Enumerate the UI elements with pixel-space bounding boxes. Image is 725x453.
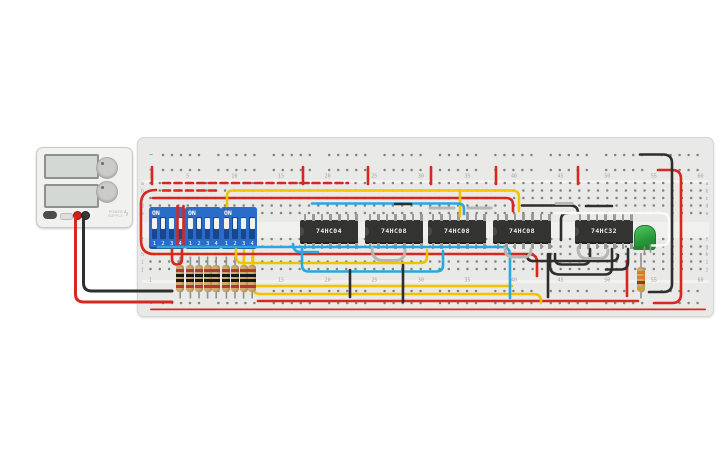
- ic-pin: [386, 243, 389, 250]
- ic-pin: [347, 243, 350, 250]
- resistor-band: [204, 269, 212, 272]
- dip-slider-slot: [249, 217, 255, 239]
- ic-pin: [312, 243, 315, 250]
- ic-pin: [403, 243, 406, 250]
- ic-pin: [475, 243, 478, 250]
- ic-pin: [483, 214, 486, 221]
- ic-pin: [321, 243, 324, 250]
- ic-pin: [466, 243, 469, 250]
- ic-pin: [604, 243, 607, 250]
- dip-slider-slot: [213, 217, 219, 239]
- ic-pin: [596, 214, 599, 221]
- resistor-band: [231, 285, 239, 288]
- knob-indicator-dot: [101, 162, 104, 165]
- ic-pin: [604, 214, 607, 221]
- ic-pin: [440, 243, 443, 250]
- resistor-band: [176, 274, 184, 277]
- ic-label: 74HC08: [365, 227, 423, 235]
- dip-slider-handle[interactable]: [241, 218, 246, 229]
- ic-pin: [369, 243, 372, 250]
- ic-pin: [531, 214, 534, 221]
- ic-pin: [522, 243, 525, 250]
- ic-pin: [505, 214, 508, 221]
- resistor-band: [231, 274, 239, 277]
- dip-switch-1[interactable]: ON 1234: [149, 207, 185, 249]
- dip-slider-handle[interactable]: [214, 218, 219, 229]
- psu-voltage-display: [44, 154, 99, 179]
- circuit-canvas: 1155101015152020252530303535404045455050…: [0, 0, 725, 453]
- ic-pin: [369, 214, 372, 221]
- resistor-band: [195, 269, 203, 272]
- resistor[interactable]: [222, 265, 230, 292]
- dip-pin-number: 2: [196, 241, 202, 247]
- ic-label: 74HC08: [493, 227, 551, 235]
- dip-slider-handle[interactable]: [178, 218, 183, 229]
- resistor-band: [231, 269, 239, 272]
- ic-pin: [531, 243, 534, 250]
- psu-lightning-icon: ϟ: [124, 209, 128, 218]
- ic-label: 74HC04: [300, 227, 358, 235]
- resistor-band: [212, 269, 220, 272]
- resistor[interactable]: [195, 265, 203, 292]
- dip-pin-number: 1: [152, 241, 158, 247]
- ic-pin: [304, 214, 307, 221]
- resistor-band: [637, 271, 645, 274]
- psu-brand-line2: SUPPLY: [108, 214, 123, 218]
- dip-slider-slot: [152, 217, 158, 239]
- ic-pin: [457, 214, 460, 221]
- ic-pin: [540, 214, 543, 221]
- ic-pin: [540, 243, 543, 250]
- ic-pin: [449, 214, 452, 221]
- resistor[interactable]: [212, 265, 220, 292]
- power-supply[interactable]: POWER SUPPLY ϟ: [36, 147, 133, 228]
- dip-pin-number: 1: [224, 241, 230, 247]
- dip-pin-number: 1: [188, 241, 194, 247]
- dip-on-label: ON: [152, 209, 160, 217]
- dip-switch-3[interactable]: ON 1234: [221, 207, 257, 249]
- ic-pin: [522, 214, 525, 221]
- ic-pin: [497, 243, 500, 250]
- rail-separator-top: [142, 180, 709, 183]
- dip-slider-slot: [196, 217, 202, 239]
- dip-pin-number: 4: [177, 241, 183, 247]
- resistor-band: [186, 285, 194, 288]
- resistor-band: [204, 285, 212, 288]
- dip-pin-number: 2: [232, 241, 238, 247]
- ic-pin: [622, 214, 625, 221]
- ic-label: 74HC08: [428, 227, 486, 235]
- ic-pin: [386, 214, 389, 221]
- resistor-band: [212, 274, 220, 277]
- dip-pin-number: 2: [160, 241, 166, 247]
- resistor[interactable]: [204, 265, 212, 292]
- dip-slider-slot: [241, 217, 247, 239]
- resistor-band: [195, 274, 203, 277]
- ic-pin: [514, 214, 517, 221]
- resistor[interactable]: [176, 265, 184, 292]
- ic-pin: [613, 243, 616, 250]
- resistor-band: [212, 285, 220, 288]
- resistor-band: [186, 269, 194, 272]
- resistor-band: [637, 281, 645, 284]
- dip-slider-slot: [188, 217, 194, 239]
- ic-74hc08-a[interactable]: 74HC08: [365, 214, 423, 249]
- ic-pin: [329, 243, 332, 250]
- resistor[interactable]: [637, 267, 645, 292]
- ic-pin: [587, 243, 590, 250]
- psu-current-knob[interactable]: [96, 181, 118, 203]
- resistor-band: [176, 285, 184, 288]
- psu-voltage-knob[interactable]: [96, 157, 118, 179]
- dip-slider-slot: [224, 217, 230, 239]
- resistor-band: [240, 269, 248, 272]
- dip-slider-handle[interactable]: [250, 218, 255, 229]
- ic-pin: [579, 243, 582, 250]
- ic-pin: [548, 214, 551, 221]
- ic-pin: [394, 214, 397, 221]
- ic-pin: [321, 214, 324, 221]
- ic-pin: [457, 243, 460, 250]
- ic-74hc04[interactable]: 74HC04: [300, 214, 358, 249]
- resistor-band: [637, 287, 645, 290]
- dip-pin-number: 4: [213, 241, 219, 247]
- resistor-band: [195, 279, 203, 282]
- resistor-band: [176, 269, 184, 272]
- dip-slider-slot: [232, 217, 238, 239]
- dip-pin-number: 3: [241, 241, 247, 247]
- green-led[interactable]: [633, 225, 655, 251]
- ic-pin: [497, 214, 500, 221]
- resistor-band: [222, 274, 230, 277]
- ic-pin: [338, 243, 341, 250]
- ic-pin: [403, 214, 406, 221]
- ic-pin: [394, 243, 397, 250]
- ic-pin: [630, 214, 633, 221]
- dip-pin-number: 3: [205, 241, 211, 247]
- ic-pin: [613, 214, 616, 221]
- resistor-band: [186, 274, 194, 277]
- ic-pin: [505, 243, 508, 250]
- ic-pin: [329, 214, 332, 221]
- resistor-band: [240, 285, 248, 288]
- resistor-band: [222, 269, 230, 272]
- resistor[interactable]: [248, 265, 256, 292]
- resistor-band: [637, 276, 645, 279]
- ic-pin: [432, 214, 435, 221]
- dip-slider-handle[interactable]: [161, 218, 166, 229]
- resistor[interactable]: [231, 265, 239, 292]
- resistor-band: [248, 269, 256, 272]
- ic-pin: [377, 214, 380, 221]
- dip-slider-handle[interactable]: [224, 218, 229, 229]
- ic-pin: [579, 214, 582, 221]
- resistor-band: [176, 279, 184, 282]
- resistor-band: [231, 279, 239, 282]
- dip-slider-handle[interactable]: [152, 218, 157, 229]
- dip-slider-handle[interactable]: [205, 218, 210, 229]
- dip-pin-number: 4: [249, 241, 255, 247]
- dip-slider-handle[interactable]: [197, 218, 202, 229]
- ic-pin: [312, 214, 315, 221]
- knob-indicator-dot: [101, 186, 104, 189]
- dip-slider-handle[interactable]: [169, 218, 174, 229]
- ic-pin: [596, 243, 599, 250]
- led-flange: [633, 246, 655, 250]
- ic-pin: [377, 243, 380, 250]
- ic-pin: [440, 214, 443, 221]
- resistor[interactable]: [240, 265, 248, 292]
- ic-pin: [304, 243, 307, 250]
- psu-power-button[interactable]: [43, 211, 57, 219]
- ic-pin: [587, 214, 590, 221]
- resistor-band: [248, 274, 256, 277]
- ic-pin: [347, 214, 350, 221]
- dip-slider-handle[interactable]: [188, 218, 193, 229]
- psu-current-display: [44, 184, 99, 208]
- dip-pin-number: 3: [169, 241, 175, 247]
- ic-pin: [449, 243, 452, 250]
- psu-power-state-pill: [60, 213, 73, 220]
- dip-slider-slot: [160, 217, 166, 239]
- resistor-band: [240, 279, 248, 282]
- ic-pin: [548, 243, 551, 250]
- ic-pin: [420, 243, 423, 250]
- dip-slider-slot: [205, 217, 211, 239]
- dip-on-label: ON: [188, 209, 196, 217]
- ic-pin: [355, 214, 358, 221]
- resistor-band: [195, 285, 203, 288]
- ic-pin: [338, 214, 341, 221]
- resistor-band: [248, 279, 256, 282]
- ic-pin: [466, 214, 469, 221]
- dip-switch-2[interactable]: ON 1234: [185, 207, 221, 249]
- resistor-band: [222, 285, 230, 288]
- ic-pin: [412, 243, 415, 250]
- ic-pin: [514, 243, 517, 250]
- ic-74hc32[interactable]: 74HC32: [575, 214, 633, 249]
- dip-slider-slot: [169, 217, 175, 239]
- ic-pin: [412, 214, 415, 221]
- resistor-band: [212, 279, 220, 282]
- ic-pin: [420, 214, 423, 221]
- resistor-band: [222, 279, 230, 282]
- dip-on-label: ON: [224, 209, 232, 217]
- ic-74hc08-c[interactable]: 74HC08: [493, 214, 551, 249]
- ic-pin: [475, 214, 478, 221]
- ic-74hc08-b[interactable]: 74HC08: [428, 214, 486, 249]
- resistor-band: [204, 279, 212, 282]
- ic-label: 74HC32: [575, 227, 633, 235]
- resistor-band: [204, 274, 212, 277]
- ic-pin: [622, 243, 625, 250]
- resistor[interactable]: [186, 265, 194, 292]
- psu-brand-label: POWER SUPPLY: [99, 210, 123, 218]
- ic-pin: [355, 243, 358, 250]
- resistor-band: [240, 274, 248, 277]
- resistor-band: [248, 285, 256, 288]
- ic-pin: [483, 243, 486, 250]
- ic-pin: [432, 243, 435, 250]
- psu-negative-terminal[interactable]: [81, 211, 90, 220]
- dip-slider-slot: [177, 217, 183, 239]
- dip-slider-handle[interactable]: [233, 218, 238, 229]
- resistor-band: [186, 279, 194, 282]
